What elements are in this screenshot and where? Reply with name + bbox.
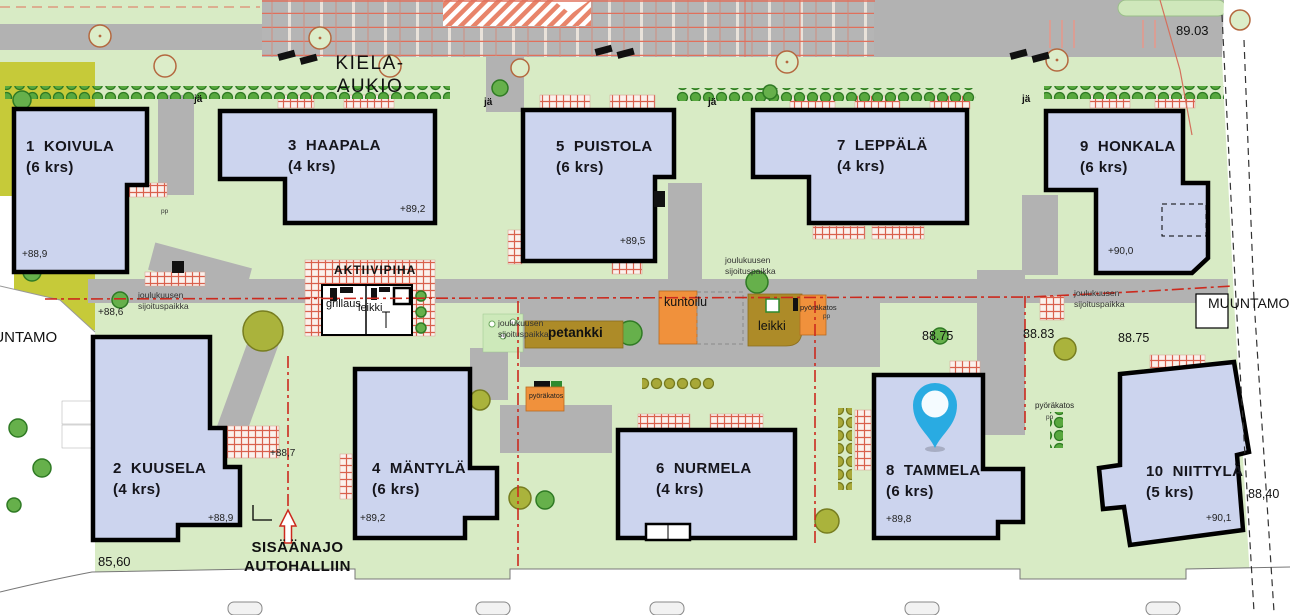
pyorakatos-label: pyöräkatos [800,304,837,312]
elevation-89-03: 89.03 [1176,24,1209,38]
building-4-label: 4 MÄNTYLÄ(6 krs) [372,458,466,500]
elevation-85-60: 85,60 [98,555,131,569]
pyorakatos-label: pyöräkatos [1035,402,1074,410]
plaza-title: KIELA-AUKIO [300,6,440,121]
building-5-puistola[interactable] [523,110,674,261]
building-2-label: 2 KUUSELA(4 krs) [113,458,206,500]
petankki-label: petankki [548,326,603,340]
elevation-88-75-west: 88.75 [922,330,953,343]
christmas-tree-spot-label: joulukuusensijoituspaikka [1074,288,1125,309]
pyorakatos-label: pyöräkatos [529,393,563,400]
ja-marker: jä [194,95,202,106]
pp-marker: pp [823,314,830,321]
building-10-label: 10 NIITTYLÄ(5 krs) [1146,461,1243,503]
building-9-elevation: +90,0 [1108,247,1133,258]
building-9-label: 9 HONKALA(6 krs) [1080,136,1176,178]
elevation-88-7: +88,7 [270,449,295,460]
leikki-label: leikki [358,303,382,315]
ja-marker: jä [484,98,492,109]
sandbox [394,288,410,304]
aktiivipiha-label: AKTIIVIPIHA [334,264,416,277]
building-1-elevation: +88,9 [22,250,47,261]
muuntamo-label-left: MUUNTAMO [0,330,57,346]
leikki-label: leikki [758,320,786,333]
ja-marker: jä [708,98,716,109]
building-1-koivula[interactable] [14,109,147,272]
building-8-label: 8 TAMMELA(6 krs) [886,460,981,502]
building-4-elevation: +89,2 [360,514,385,525]
pp-marker: pp [1046,415,1053,422]
building-3-label: 3 HAAPALA(4 krs) [288,135,381,177]
elevation-88-6: +88,6 [98,308,123,319]
christmas-tree-spot-label: joulukuusensijoituspaikka [725,255,776,276]
building-6-label: 6 NURMELA(4 krs) [656,458,752,500]
elevation-88-40: 88,40 [1248,488,1279,501]
elevation-88-83: 88.83 [1023,328,1054,341]
christmas-tree-spot-label: joulukuusensijoituspaikka [498,318,549,339]
garage-entrance-label: SISÄÄNAJOAUTOHALLIIN [225,538,370,576]
muuntamo-label-right: MUUNTAMO [1208,296,1289,311]
building-8-elevation: +89,8 [886,515,911,526]
building-5-elevation: +89,5 [620,237,645,248]
building-5-label: 5 PUISTOLA(6 krs) [556,136,653,178]
building-3-elevation: +89,2 [400,205,425,216]
building-7-label: 7 LEPPÄLÄ(4 krs) [837,135,928,177]
building-1-label: 1 KOIVULA(6 krs) [26,136,114,178]
elevation-88-75-east: 88.75 [1118,332,1149,345]
pp-marker: pp [161,209,168,216]
ja-marker: jä [1022,95,1030,106]
christmas-tree-spot-label: joulukuusensijoituspaikka [138,290,189,311]
site-plan: KIELA-AUKIO 89.03 jä jä jä jä 1 KOIVULA(… [0,0,1290,615]
kuntoilu-label: kuntoilu [664,296,707,309]
grillaus-label: grillaus [326,299,361,311]
building-2-elevation: +88,9 [208,514,233,525]
building-10-elevation: +90,1 [1206,514,1231,525]
